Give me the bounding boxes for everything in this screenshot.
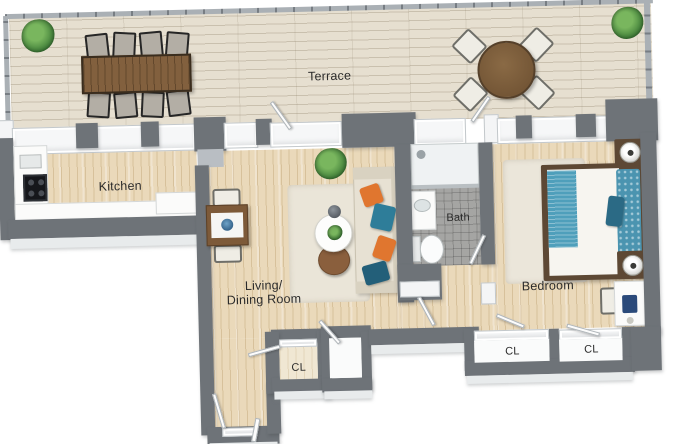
closet-right-label: CL (584, 343, 599, 356)
closet-threshold (279, 339, 317, 348)
living-window-icon (224, 122, 259, 149)
outdoor-chair-icon (86, 91, 111, 118)
kitchen-appliance-icon (155, 191, 198, 214)
wall-pier (194, 117, 227, 152)
bath-label: Bath (446, 212, 470, 225)
outdoor-dining-table-icon (81, 54, 192, 95)
kitchen-sink-icon (19, 154, 41, 169)
terrace-label: Terrace (308, 69, 351, 84)
bath-window-icon (414, 118, 467, 146)
closet-left-label: CL (505, 345, 520, 358)
floor-plan-rotated-canvas: Terrace Kitchen (0, 0, 697, 444)
lamp-center (630, 263, 636, 269)
laptop-icon (622, 295, 637, 313)
wall-pier (141, 121, 160, 146)
stove-icon (23, 174, 48, 202)
wall-segment (342, 112, 417, 148)
wall-outer-face (324, 390, 372, 399)
living-dining-label: Living/ Dining Room (226, 278, 301, 309)
kitchen-label: Kitchen (99, 179, 142, 194)
bed-blanket-teal (547, 170, 578, 248)
closet-entry-label: CL (291, 362, 306, 375)
bedroom-label: Bedroom (522, 278, 574, 294)
wall-pier (516, 115, 533, 138)
outdoor-chair-icon (113, 91, 138, 119)
burner-icon (38, 190, 44, 196)
door-jamb (481, 282, 497, 304)
living-dining-label-line2: Dining Room (227, 292, 302, 308)
wall-pier (76, 123, 99, 149)
terrace-door-threshold (270, 121, 343, 148)
wall-corner (631, 326, 662, 371)
outdoor-chair-icon (166, 89, 192, 118)
burner-icon (28, 179, 34, 185)
pillow-icon (605, 195, 624, 227)
burner-icon (38, 179, 44, 185)
outdoor-chair-icon (141, 91, 165, 118)
wall-pier (576, 114, 597, 137)
wall-outer-face (371, 343, 471, 354)
chair-icon (214, 244, 242, 263)
floor-plan: Terrace Kitchen (0, 0, 697, 444)
wall-cap (400, 281, 440, 298)
shaft-floor (329, 338, 362, 379)
